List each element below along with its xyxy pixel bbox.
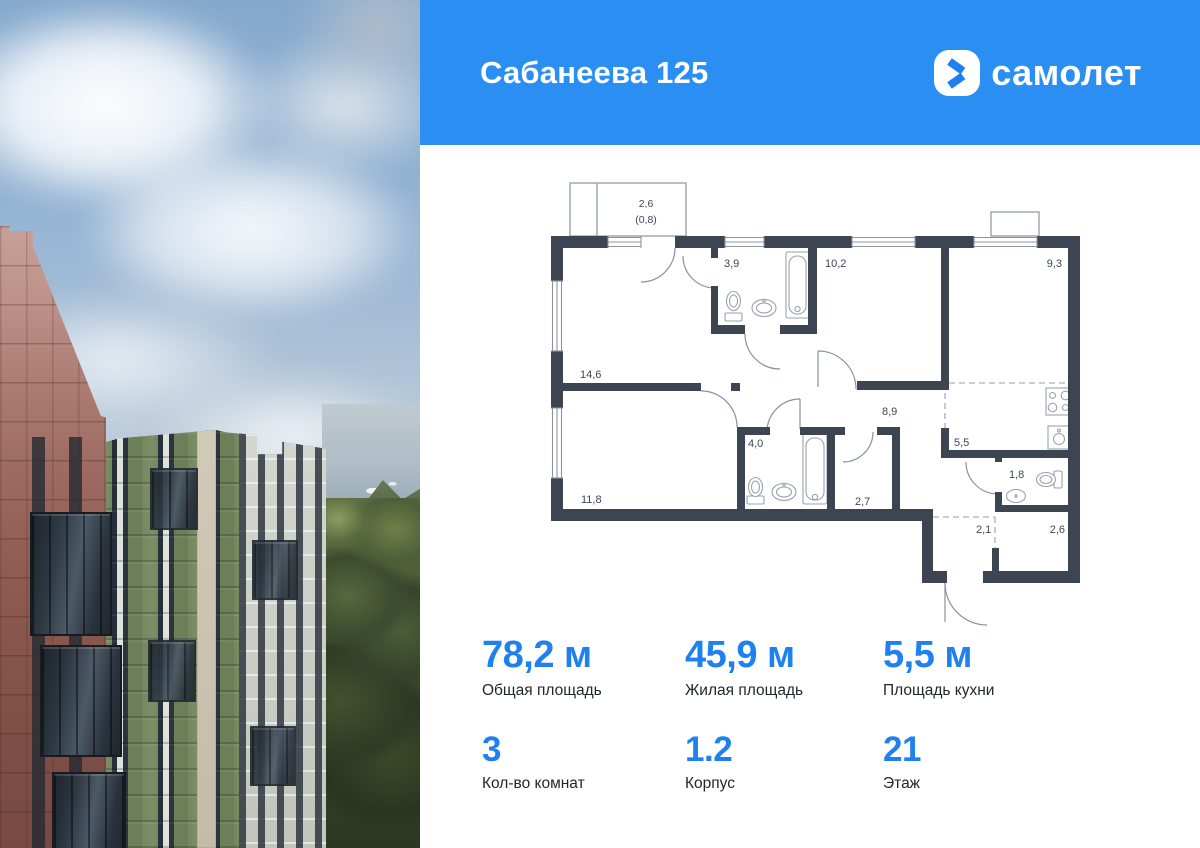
stat-label: Этаж bbox=[883, 775, 1142, 793]
stat-label: Площадь кухни bbox=[883, 682, 1142, 700]
stat-total-area: 78,2 м Общая площадь bbox=[482, 636, 685, 700]
room-area-label: 9,3 bbox=[1047, 258, 1062, 270]
stat-value: 5,5 м bbox=[883, 636, 1142, 674]
balcony-glass bbox=[52, 772, 126, 848]
page-title: Сабанеева 125 bbox=[480, 55, 708, 91]
balcony-glass bbox=[252, 540, 298, 600]
samolet-logo-icon bbox=[934, 50, 980, 96]
balcony-coef-label: (0,8) bbox=[635, 214, 657, 226]
balcony-glass bbox=[40, 645, 122, 757]
room-area-label: 8,9 bbox=[882, 406, 897, 418]
stat-label: Кол-во комнат bbox=[482, 775, 685, 793]
balcony-glass bbox=[150, 468, 198, 530]
stat-value: 3 bbox=[482, 732, 685, 767]
walls bbox=[551, 236, 1080, 583]
room-area-label: 4,0 bbox=[748, 438, 763, 450]
balcony-glass bbox=[148, 640, 196, 702]
stat-label: Корпус bbox=[685, 775, 883, 793]
stat-value: 45,9 м bbox=[685, 636, 883, 674]
room-area-label: 2,1 bbox=[976, 524, 991, 536]
stat-rooms: 3 Кол-во комнат bbox=[482, 732, 685, 793]
room-area-label: 14,6 bbox=[580, 369, 601, 381]
room-area-label: 1,8 bbox=[1009, 469, 1024, 481]
stats-grid: 78,2 м Общая площадь 45,9 м Жилая площад… bbox=[482, 636, 1142, 793]
stat-living-area: 45,9 м Жилая площадь bbox=[685, 636, 883, 700]
room-area-label: 2,6 bbox=[1050, 524, 1065, 536]
stat-label: Жилая площадь bbox=[685, 682, 883, 700]
floorplan: 2,6 (0,8) 3,9 10,2 9,3 14,6 8,9 4,0 5,5 … bbox=[540, 170, 1100, 638]
balcony-glass bbox=[30, 512, 112, 636]
brand-name: самолет bbox=[991, 52, 1142, 94]
brand-logo: самолет bbox=[934, 50, 1142, 96]
stat-value: 21 bbox=[883, 732, 1142, 767]
stat-value: 1.2 bbox=[685, 732, 883, 767]
room-area-label: 3,9 bbox=[724, 258, 739, 270]
listing-card: Сабанеева 125 самолет bbox=[0, 0, 1200, 848]
stat-korpus: 1.2 Корпус bbox=[685, 732, 883, 793]
building-photo bbox=[0, 0, 420, 848]
room-area-label: 11,8 bbox=[581, 494, 602, 506]
balcony-area-label: 2,6 bbox=[639, 198, 654, 210]
forest bbox=[320, 498, 420, 848]
room-area-label: 2,7 bbox=[855, 496, 870, 508]
listing-header: Сабанеева 125 самолет bbox=[420, 0, 1200, 145]
stat-label: Общая площадь bbox=[482, 682, 685, 700]
room-area-label: 5,5 bbox=[954, 437, 969, 449]
stat-value: 78,2 м bbox=[482, 636, 685, 674]
balcony-glass bbox=[250, 726, 296, 786]
room-area-label: 10,2 bbox=[825, 258, 846, 270]
stat-floor: 21 Этаж bbox=[883, 732, 1142, 793]
stat-kitchen-area: 5,5 м Площадь кухни bbox=[883, 636, 1142, 700]
